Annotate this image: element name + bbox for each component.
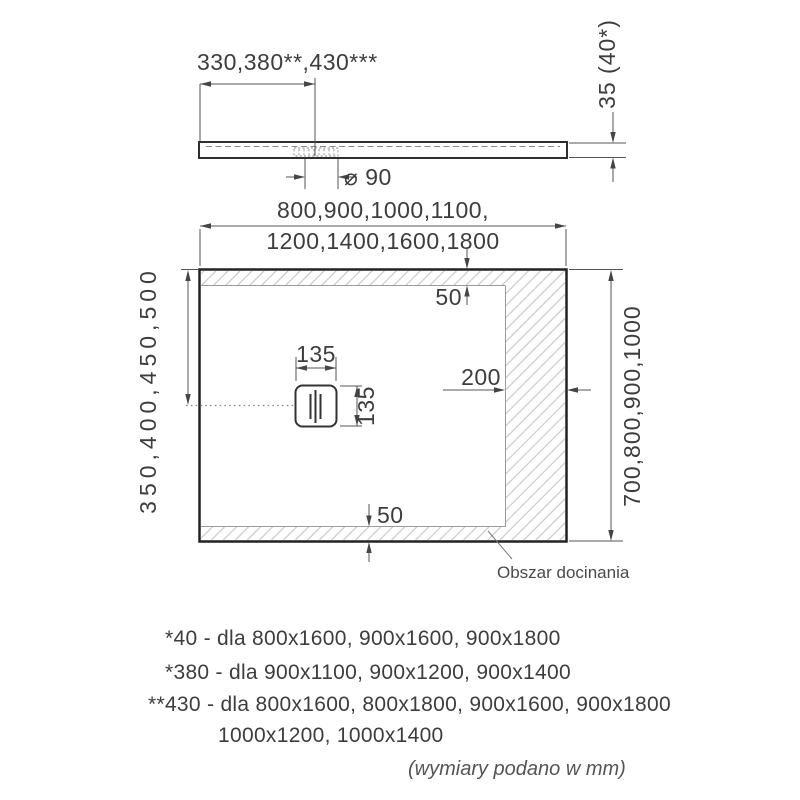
right-strip-dim-label: 200 [461, 364, 501, 390]
thickness-dim-label: 35 (40*) [594, 19, 620, 109]
top-edge-dim-label: 50 [435, 284, 462, 310]
tray-profile-outline [199, 142, 567, 158]
footnote-430-continued: 1000x1200, 1000x1400 [218, 724, 444, 747]
plan-view: 800,900,1000,1100, 1200,1400,1600,1800 5… [135, 197, 645, 582]
side-view: 330,380**,430*** ⌀ 90 35 (40*) [197, 19, 626, 190]
width-dim-label-line1: 800,900,1000,1100, [277, 197, 489, 223]
drain-cover [296, 386, 337, 427]
drain-offset-vertical-label: 350,400,450,500 [135, 266, 161, 514]
height-dim-label: 700,800,900,1000 [619, 305, 645, 506]
bottom-edge-dim-label: 50 [377, 502, 404, 528]
footnotes: *40 - dla 800x1600, 900x1600, 900x1800 *… [148, 627, 671, 780]
drain-height-dim-label: 135 [353, 386, 379, 426]
footnote-380: *380 - dla 900x1100, 900x1200, 900x1400 [165, 661, 571, 684]
units-note: (wymiary podano w mm) [408, 758, 626, 780]
dimension-overall-height [569, 270, 623, 542]
footnote-40: *40 - dla 800x1600, 900x1600, 900x1800 [165, 627, 561, 650]
drain-offset-dim-label: 330,380**,430*** [197, 49, 378, 75]
dimension-thickness [569, 112, 626, 182]
drawing-svg: 330,380**,430*** ⌀ 90 35 (40*) [0, 0, 800, 800]
drain-width-dim-label: 135 [296, 341, 336, 367]
drain-diameter-dim-label: ⌀ 90 [344, 164, 392, 190]
dimension-drain-offset-vertical [181, 270, 198, 406]
footnote-430: **430 - dla 800x1600, 800x1800, 900x1600… [148, 693, 671, 716]
shower-tray-technical-drawing: 330,380**,430*** ⌀ 90 35 (40*) [0, 0, 800, 800]
trim-area-label: Obszar docinania [497, 563, 630, 582]
width-dim-label-line2: 1200,1400,1600,1800 [266, 228, 499, 254]
